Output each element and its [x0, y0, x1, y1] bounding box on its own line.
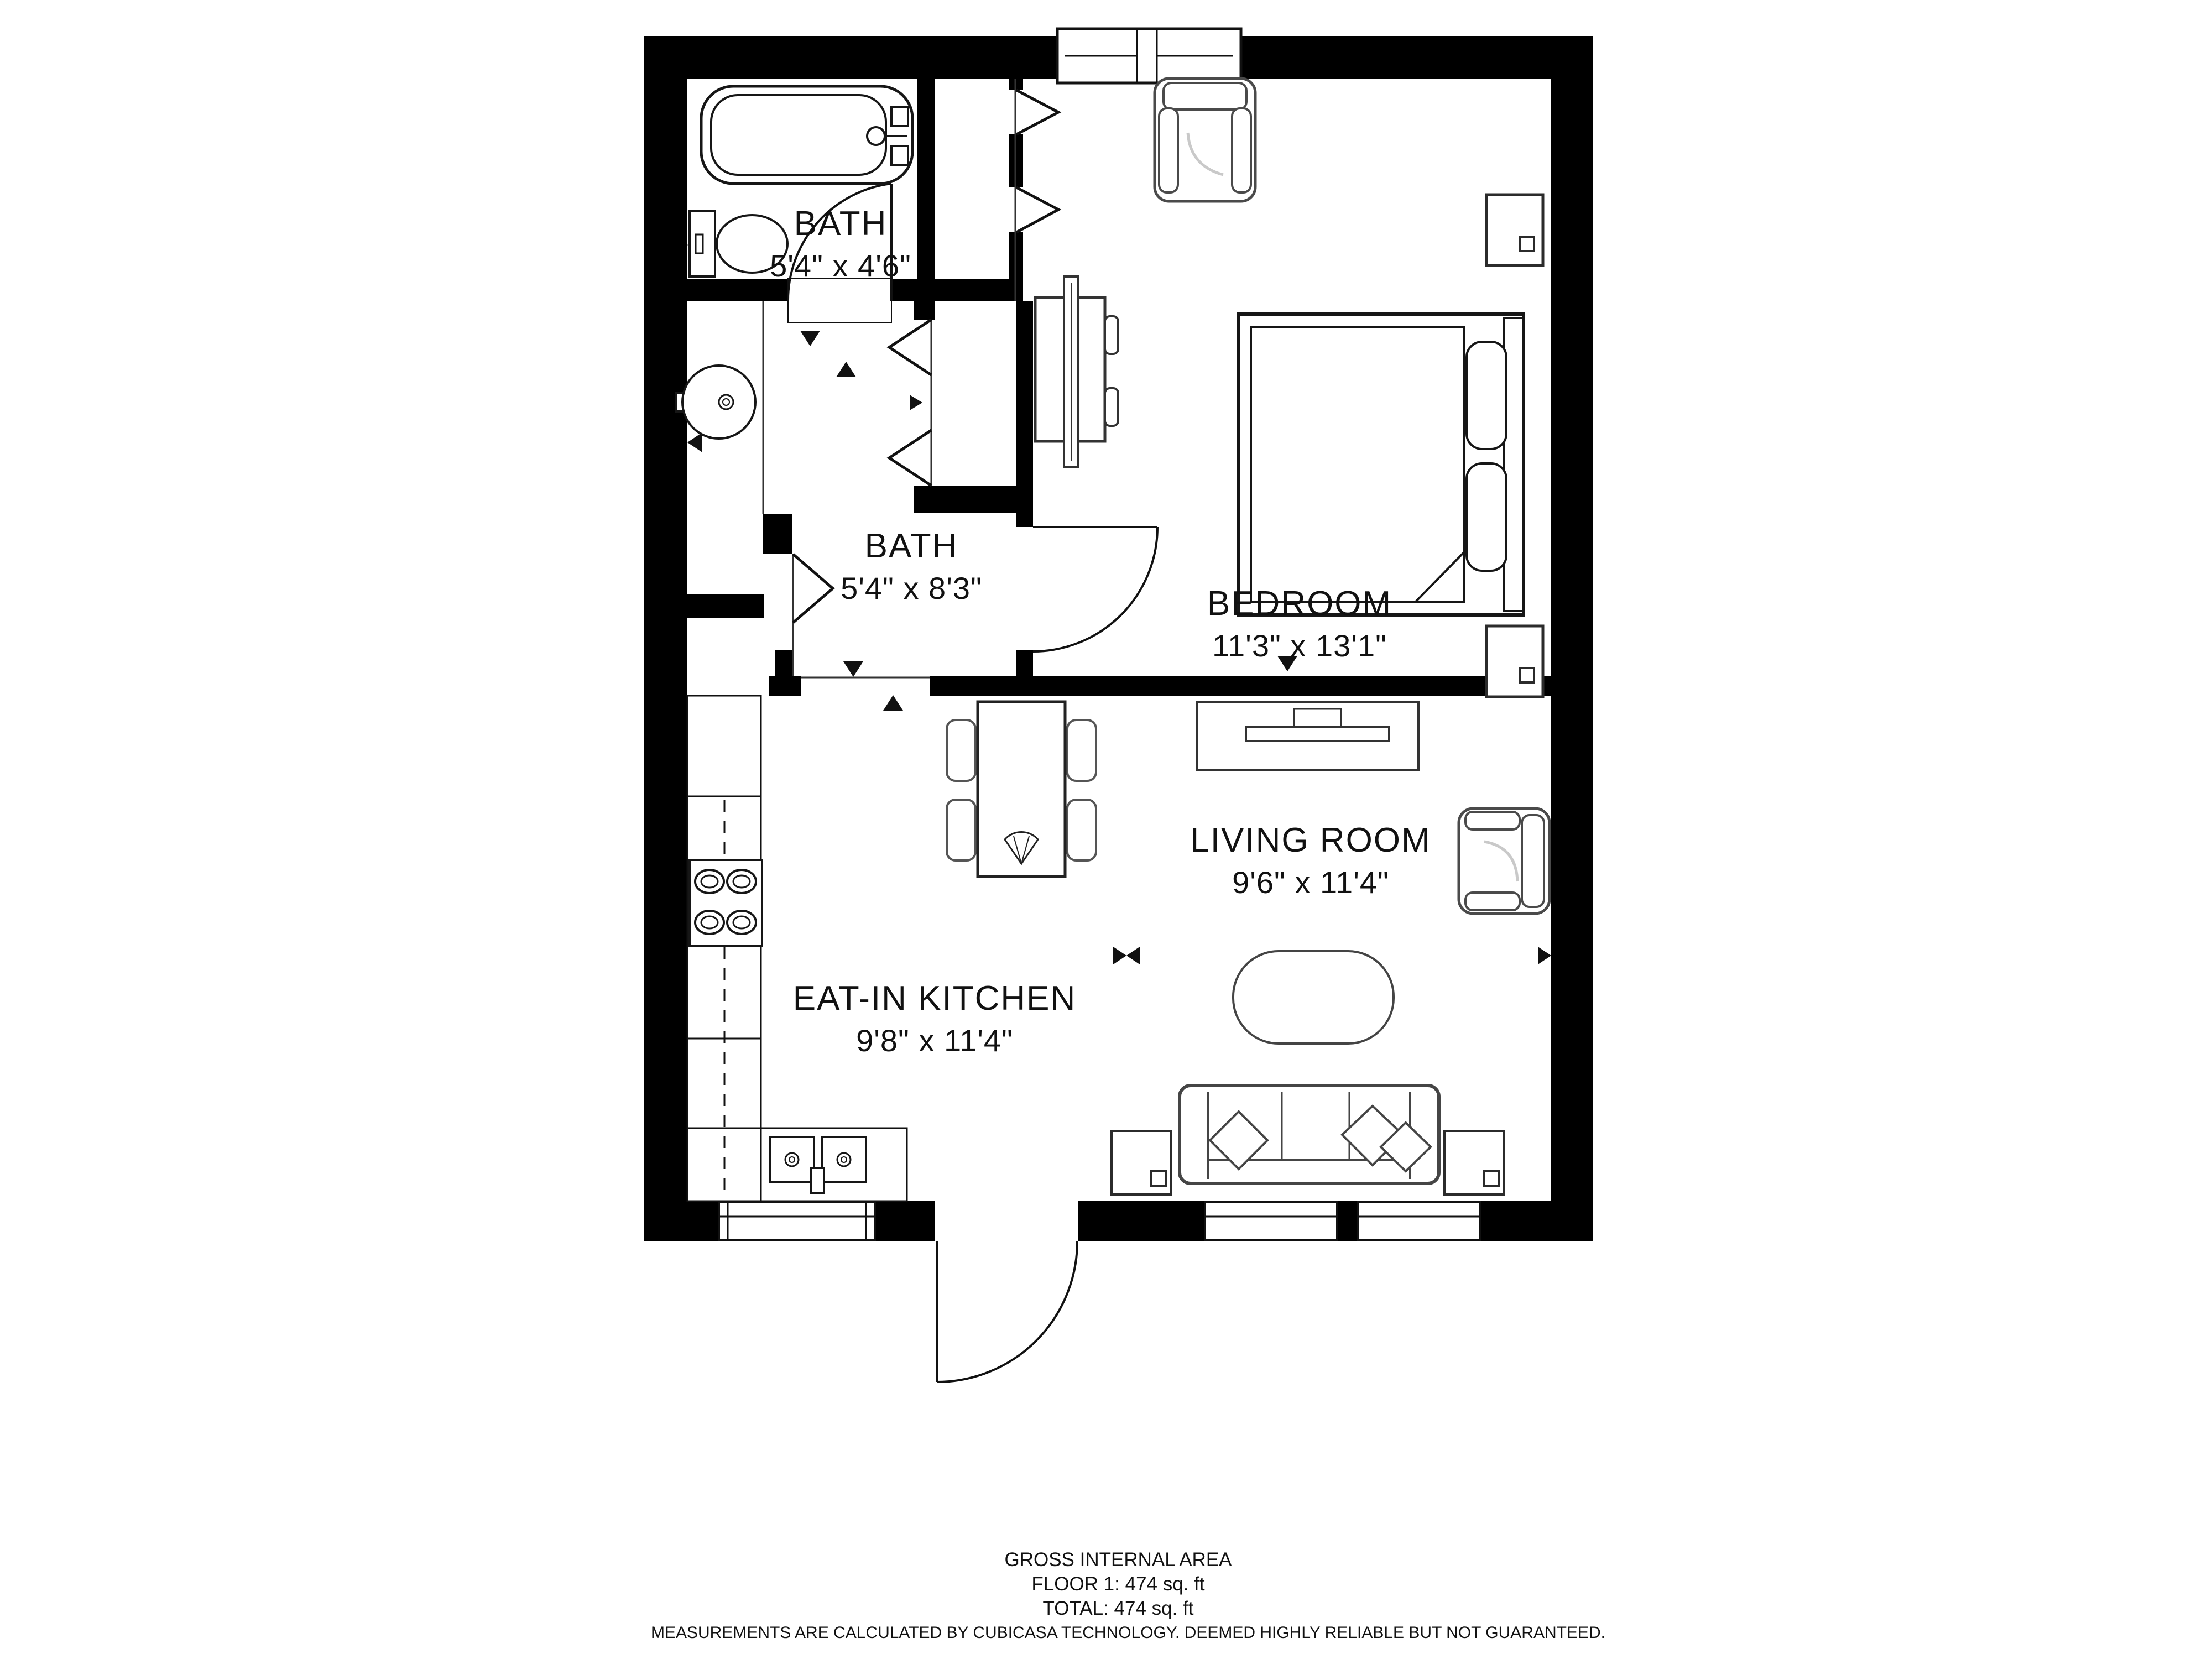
footer-floor-area: FLOOR 1: 474 sq. ft [1031, 1573, 1204, 1595]
bathtub-icon [701, 86, 912, 184]
direction-arrow-icon [836, 362, 856, 377]
door-swing-icon-bedroom [1033, 527, 1157, 651]
footer-gross-internal-area: GROSS INTERNAL AREA [1004, 1549, 1232, 1571]
direction-arrow-icon [687, 432, 702, 452]
mattress [1251, 327, 1464, 602]
bedroom-door-opening [1016, 527, 1033, 650]
room-dims-living-room: 9'6" x 11'4" [1232, 865, 1389, 900]
window-opening-living-2 [1358, 1201, 1480, 1241]
armchair-icon [1155, 79, 1255, 201]
direction-arrow-icon [1113, 947, 1126, 964]
direction-arrow-icon [910, 395, 922, 410]
tv-icon-bedroom [1035, 276, 1118, 467]
pillow [1467, 463, 1506, 571]
chair-icon [1067, 720, 1096, 781]
footer: GROSS INTERNAL AREA FLOOR 1: 474 sq. ft … [651, 1549, 1605, 1642]
chair-icon [947, 720, 975, 781]
window-opening-living-1 [1205, 1201, 1337, 1241]
tv-icon-living [1246, 727, 1389, 741]
room-label-bedroom: BEDROOM [1207, 585, 1392, 623]
nightstand-icon [1486, 195, 1543, 265]
footer-disclaimer: MEASUREMENTS ARE CALCULATED BY CUBICASA … [651, 1624, 1605, 1642]
bath-door-threshold [788, 278, 891, 322]
pillow [1467, 342, 1506, 449]
chair-icon [1067, 800, 1096, 860]
armchair-icon [1459, 808, 1550, 914]
pedestal-sink-icon [676, 366, 755, 439]
room-dims-eat-in-kitchen: 9'8" x 11'4" [856, 1023, 1013, 1058]
coffee-table-icon [1233, 951, 1394, 1044]
chair-icon [947, 800, 975, 860]
direction-arrow-icon [1538, 947, 1551, 964]
end-table-icon [1444, 1131, 1504, 1194]
room-dims-bedroom: 11'3" x 13'1" [1212, 628, 1387, 663]
tv-console-icon [1197, 702, 1418, 770]
dining-table-icon [947, 702, 1096, 877]
walls [644, 36, 1593, 1241]
door-swing-icon-entry [937, 1241, 1077, 1382]
direction-arrow-icon [843, 661, 863, 677]
room-dims-bath-2: 5'4" x 8'3" [841, 571, 982, 606]
direction-arrow-icon [800, 331, 820, 346]
footer-total-area: TOTAL: 474 sq. ft [1043, 1598, 1194, 1619]
room-label-bath-1: BATH [794, 205, 888, 243]
bed-icon [1239, 314, 1524, 615]
direction-arrow-icon [883, 695, 903, 711]
room-label-living-room: LIVING ROOM [1190, 821, 1431, 859]
stove-icon [690, 860, 762, 946]
entry-door-opening [935, 1201, 1078, 1241]
bifold-door-icon-laundry [793, 554, 833, 623]
floorplan-page: BATH 5'4" x 4'6" BATH 5'4" x 8'3" BEDROO… [0, 0, 2212, 1659]
end-table-icon [1112, 1131, 1171, 1194]
nightstand-icon [1486, 626, 1543, 697]
window-opening-kitchen [719, 1201, 875, 1241]
room-dims-bath-1: 5'4" x 4'6" [770, 248, 911, 283]
sofa-icon [1180, 1086, 1439, 1183]
direction-arrow-icon [1126, 947, 1140, 964]
kitchen-counter [687, 696, 907, 1201]
room-label-eat-in-kitchen: EAT-IN KITCHEN [793, 979, 1077, 1018]
room-label-bath-2: BATH [865, 527, 958, 565]
